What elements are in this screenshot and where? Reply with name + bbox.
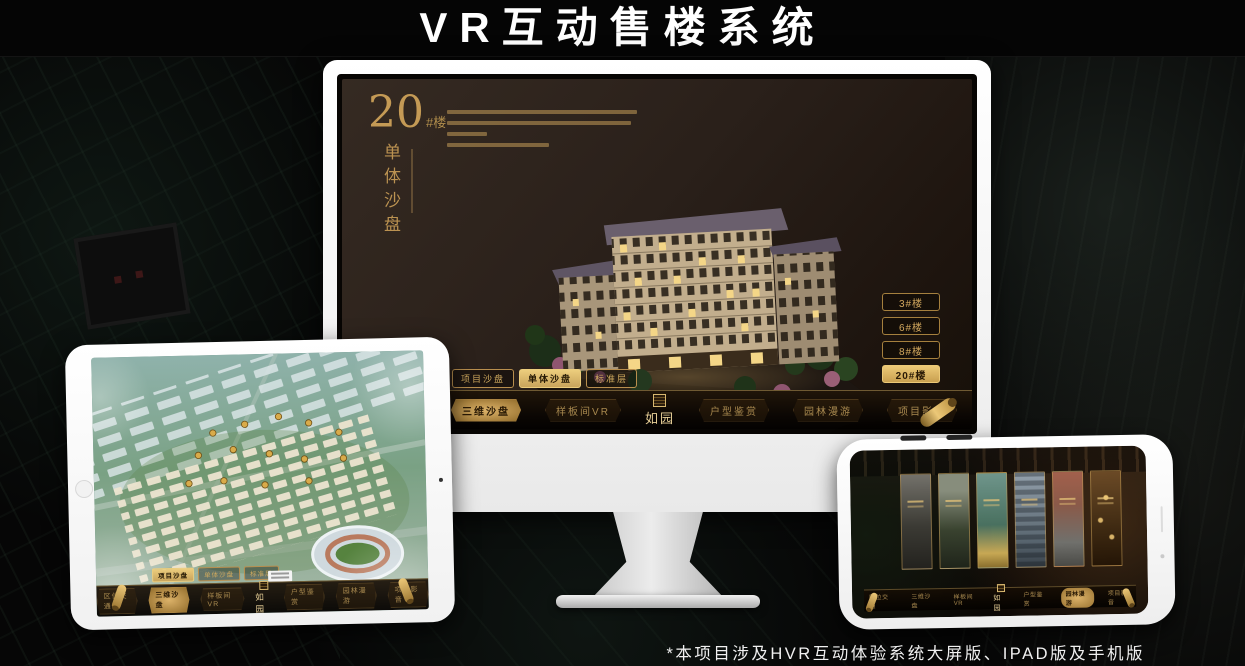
description-line [447, 132, 487, 136]
seal-icon [997, 584, 1005, 592]
phone-nav-item-3d-sandtable[interactable]: 三维沙盘 [906, 590, 940, 611]
tablet-navbar: 区位交通 三维沙盘 样板间VR 如园 户型鉴赏 园林漫游 项目影音 [96, 578, 429, 617]
floor-selector: 3#楼 6#楼 8#楼 20#楼 [882, 293, 940, 383]
phone-camera-icon [1160, 554, 1164, 558]
phone-volume-button[interactable] [900, 435, 926, 440]
footnote-text: *本项目涉及HVR互动体验系统大屏版、IPAD版及手机版 [666, 640, 1145, 664]
page-title: VR互动售楼系统 [419, 7, 825, 49]
phone-brand-logo: 如园 [993, 584, 1010, 613]
tablet-device: 项目沙盘 单体沙盘 标准层 区位交通 三维沙盘 样板间VR 如园 户型鉴赏 园林… [65, 337, 455, 631]
section-title-vertical: 单体沙盘 [378, 143, 403, 239]
floor-button-3[interactable]: 3#楼 [882, 293, 940, 311]
nav-item-garden-tour[interactable]: 园林漫游 [793, 399, 863, 422]
phone-nav-item-unit-plans[interactable]: 户型鉴赏 [1018, 588, 1052, 609]
nav-item-showroom-vr[interactable]: 样板间VR [545, 399, 621, 422]
section-heading: 20#楼 单体沙盘 [368, 91, 446, 244]
tablet-nav-item-garden-tour[interactable]: 园林漫游 [336, 582, 377, 609]
tab-standard-floor[interactable]: 标准层 [586, 369, 637, 388]
brand-logo: 如园 [645, 394, 675, 427]
promo-poster: VR互动售楼系统 20#楼 单体沙盘 [0, 0, 1245, 666]
tablet-app-screen: 项目沙盘 单体沙盘 标准层 区位交通 三维沙盘 样板间VR 如园 户型鉴赏 园林… [91, 350, 429, 616]
background-plaque [73, 222, 190, 329]
tab-single-sandtable[interactable]: 单体沙盘 [519, 369, 581, 388]
floor-button-8[interactable]: 8#楼 [882, 341, 940, 359]
description-line [447, 110, 637, 114]
phone-speaker-icon [1161, 506, 1163, 532]
phone-nav-item-garden-tour[interactable]: 园林漫游 [1061, 587, 1095, 608]
tablet-camera-icon [439, 477, 443, 481]
tablet-nav-item-3d-sandtable[interactable]: 三维沙盘 [148, 587, 189, 614]
title-bar: VR互动售楼系统 [0, 0, 1245, 57]
nav-item-3d-sandtable[interactable]: 三维沙盘 [451, 399, 521, 422]
monitor-stand-base [556, 595, 760, 608]
building-number: 20 [368, 87, 424, 138]
description-line [447, 143, 549, 147]
tablet-mode-tabs: 项目沙盘 单体沙盘 标准层 [152, 566, 279, 583]
phone-nav-item-showroom-vr[interactable]: 样板间VR [948, 590, 984, 608]
tab-project-sandtable[interactable]: 项目沙盘 [452, 369, 514, 388]
seal-icon [653, 394, 666, 407]
seal-icon [259, 581, 268, 590]
gallery-panels [900, 470, 1123, 570]
brand-name: 如园 [645, 408, 675, 427]
phone-navbar: 区位交通 三维沙盘 样板间VR 如园 户型鉴赏 园林漫游 项目影音 [864, 585, 1136, 612]
tablet-brand-logo: 如园 [255, 581, 273, 615]
monitor-stand-neck [592, 512, 724, 598]
phone-volume-button[interactable] [946, 435, 972, 440]
tablet-nav-item-showroom-vr[interactable]: 样板间VR [200, 587, 245, 611]
brand-name: 如园 [993, 593, 1009, 613]
nav-item-unit-plans[interactable]: 户型鉴赏 [699, 399, 769, 422]
tablet-home-button[interactable] [75, 479, 93, 497]
gallery-panel-aerial[interactable] [976, 472, 1009, 569]
phone-app-screen: 区位交通 三维沙盘 样板间VR 如园 户型鉴赏 园林漫游 项目影音 [850, 446, 1149, 619]
mode-tabs: 项目沙盘 单体沙盘 标准层 [452, 369, 637, 388]
description-paragraph [447, 110, 637, 154]
phone-device: 区位交通 三维沙盘 样板间VR 如园 户型鉴赏 园林漫游 项目影音 [836, 434, 1175, 630]
floor-button-20[interactable]: 20#楼 [882, 365, 940, 383]
tablet-tab-single-sandtable[interactable]: 单体沙盘 [198, 566, 240, 581]
brand-name: 如园 [255, 591, 273, 615]
decorative-rule [411, 149, 413, 213]
gallery-panel-blossom[interactable] [1052, 471, 1085, 568]
gallery-panel-interior[interactable] [1090, 470, 1123, 567]
description-line [447, 121, 631, 125]
tablet-tab-project-sandtable[interactable]: 项目沙盘 [152, 568, 194, 583]
gallery-panel-building[interactable] [1014, 471, 1047, 568]
building-number-suffix: #楼 [426, 115, 446, 130]
floor-button-6[interactable]: 6#楼 [882, 317, 940, 335]
gallery-panel-courtyard[interactable] [900, 473, 933, 570]
tablet-nav-item-unit-plans[interactable]: 户型鉴赏 [284, 584, 325, 611]
gallery-panel-garden[interactable] [938, 473, 971, 570]
